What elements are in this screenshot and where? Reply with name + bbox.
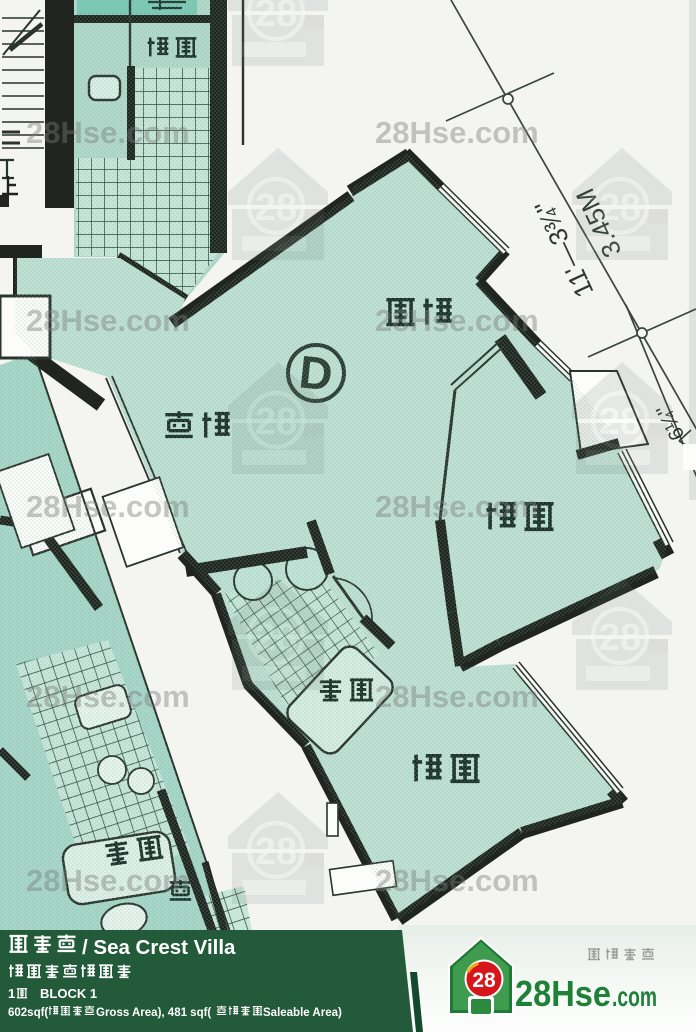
svg-text:28Hse.com: 28Hse.com — [26, 679, 190, 714]
svg-text:/ Sea Crest Villa: / Sea Crest Villa — [82, 936, 236, 959]
svg-text:28Hse.com: 28Hse.com — [26, 489, 190, 524]
svg-text:28Hse.com: 28Hse.com — [375, 863, 539, 898]
svg-text:28Hse.com: 28Hse.com — [375, 489, 539, 524]
svg-text:28Hse.com: 28Hse.com — [375, 303, 539, 338]
svg-text:1: 1 — [8, 986, 15, 1001]
svg-text:28Hse.com: 28Hse.com — [26, 115, 190, 150]
svg-text:28Hse.com: 28Hse.com — [375, 115, 539, 150]
svg-text:28: 28 — [472, 969, 496, 992]
svg-text:28Hse: 28Hse — [515, 973, 611, 1014]
svg-text:BLOCK 1: BLOCK 1 — [40, 986, 97, 1001]
svg-text:28Hse.com: 28Hse.com — [26, 863, 190, 898]
svg-text:Gross Area), 481 sqf(: Gross Area), 481 sqf( — [96, 1007, 211, 1019]
svg-text:.com: .com — [612, 981, 657, 1012]
svg-text:28Hse.com: 28Hse.com — [375, 679, 539, 714]
svg-text:602sqf(: 602sqf( — [8, 1007, 48, 1019]
svg-text:Saleable Area): Saleable Area) — [263, 1007, 342, 1019]
svg-text:28Hse.com: 28Hse.com — [26, 303, 190, 338]
